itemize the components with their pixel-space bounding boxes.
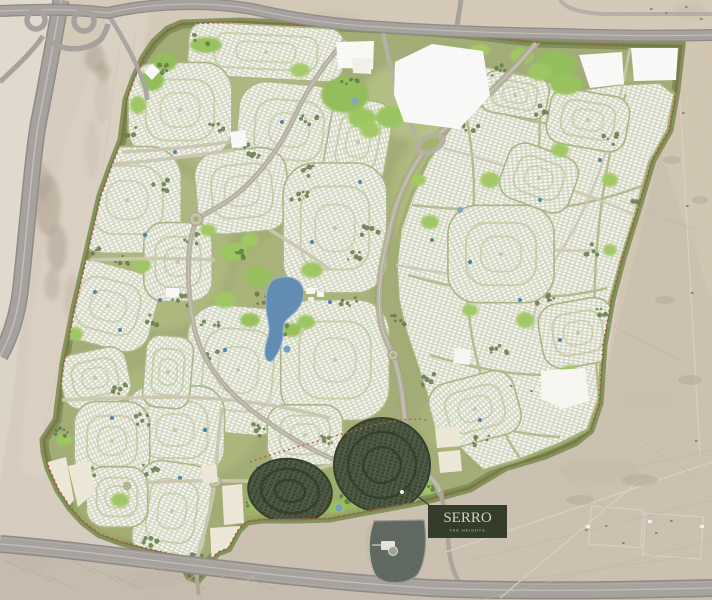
- svg-text:SERRO: SERRO: [443, 510, 492, 526]
- svg-text:THE HEIGHTS: THE HEIGHTS: [449, 529, 485, 533]
